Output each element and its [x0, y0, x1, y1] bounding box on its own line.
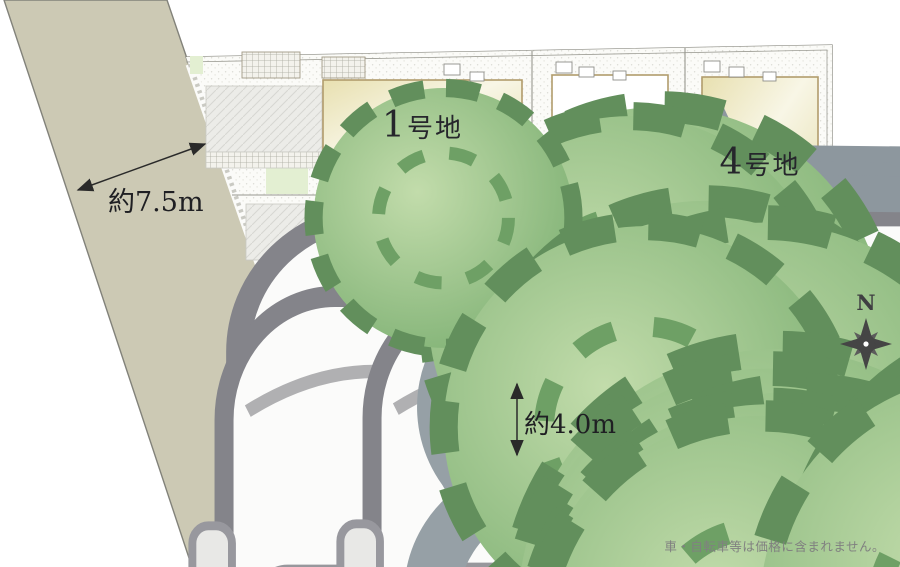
lot-4-number: 4 — [720, 145, 743, 181]
lot-1-suffix: 号地 — [407, 116, 463, 142]
compass-north-label: N — [846, 290, 886, 315]
lot-1-label: 1 号地 — [323, 80, 522, 144]
site-plan: 1 号地 4 号地 約7.5m 約4.0m N 車・自転車等は価格に含まれません… — [0, 0, 900, 567]
driveway — [206, 86, 322, 152]
footnote-text: 車・自転車等は価格に含まれません。 — [595, 536, 885, 555]
lot-4-suffix: 号地 — [744, 153, 800, 179]
lot-4-label: 4 号地 — [702, 77, 818, 181]
west-road-width-label: 約7.5m — [108, 180, 204, 219]
paver-grid — [322, 57, 365, 78]
lot-1-number: 1 — [382, 108, 405, 144]
south-road-width-label: 約4.0m — [524, 404, 616, 441]
paver-grid — [242, 52, 300, 78]
driveway — [206, 152, 322, 168]
